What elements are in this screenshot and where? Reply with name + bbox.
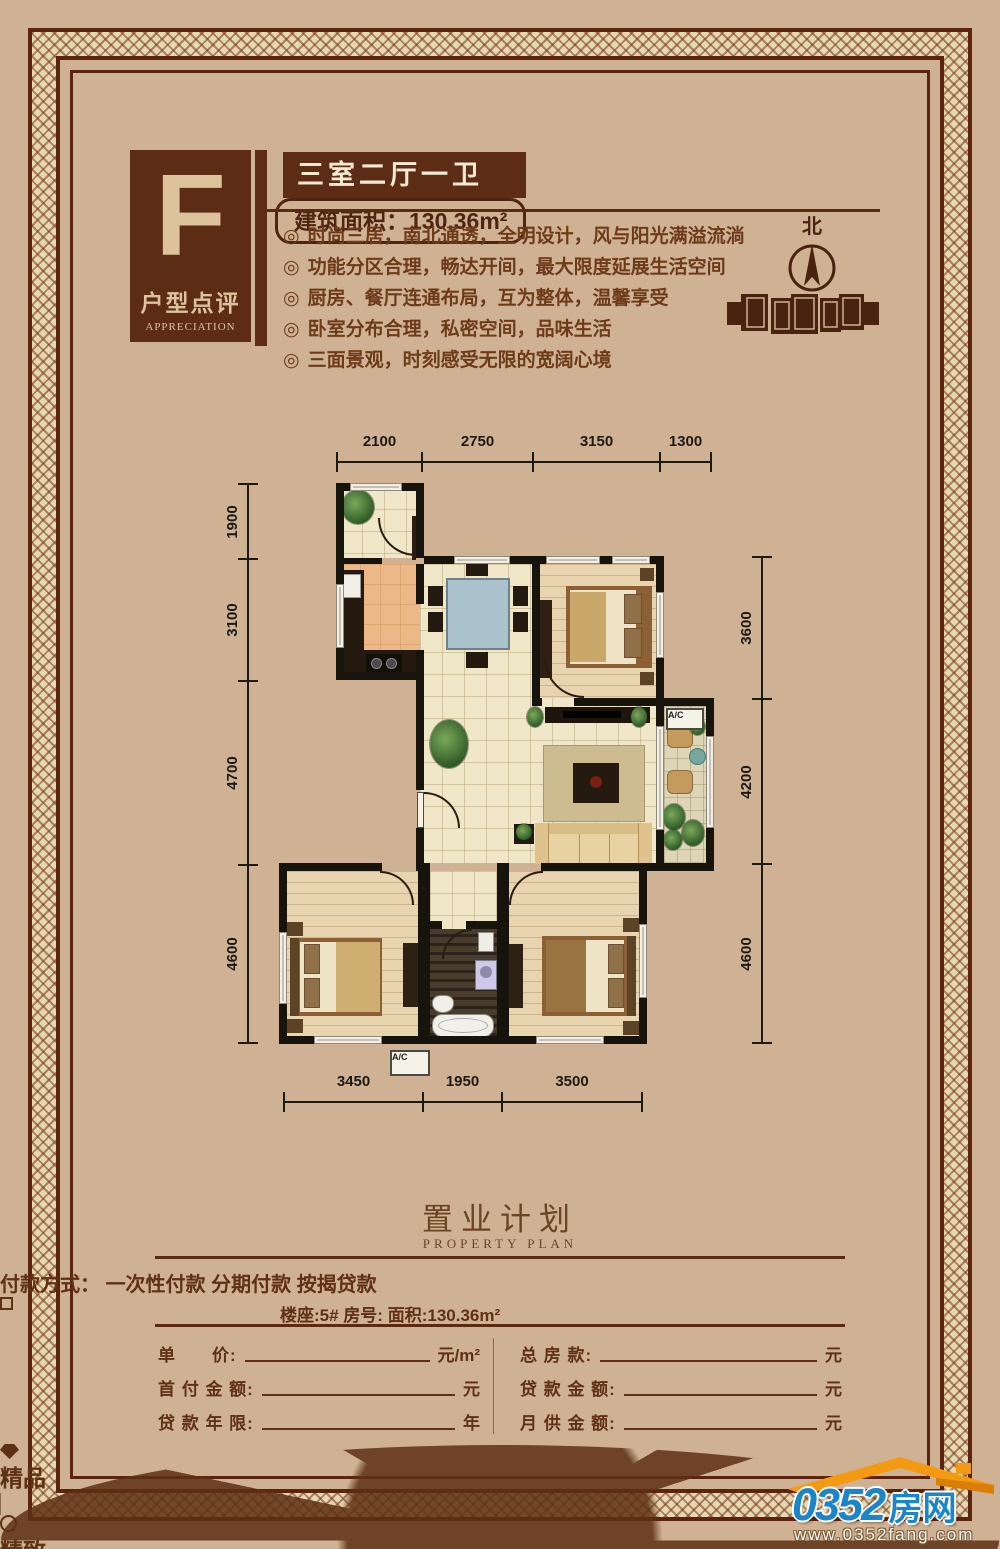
medallion-icon xyxy=(0,1515,17,1532)
form-unit: 元 xyxy=(463,1375,480,1404)
form-input-line[interactable] xyxy=(600,1342,817,1362)
plant xyxy=(342,490,374,524)
form-unit: 年 xyxy=(463,1409,480,1438)
dimension-value: 1900 xyxy=(224,505,241,538)
dimension-value: 3500 xyxy=(503,1073,641,1090)
blanket xyxy=(570,592,606,662)
washer-door-icon xyxy=(480,966,492,978)
payment-method-label: 付款方式： xyxy=(0,1274,100,1296)
form-input-line[interactable] xyxy=(624,1410,817,1430)
plant xyxy=(631,707,647,727)
dimension-value: 1300 xyxy=(661,433,710,450)
window xyxy=(314,1036,382,1044)
bathtub-basin xyxy=(438,1018,488,1033)
payment-option: 按揭贷款 xyxy=(297,1274,377,1296)
form-unit: 元 xyxy=(825,1409,842,1438)
dimension-segment: 1300 xyxy=(659,452,712,472)
sofa-back xyxy=(549,823,638,834)
pillow xyxy=(608,978,624,1008)
logo-number: 0352 xyxy=(792,1479,884,1530)
dimension-value: 1950 xyxy=(424,1073,501,1090)
feature-text: 厨房、餐厅连通布局，互为整体，温馨享受 xyxy=(308,288,669,309)
window xyxy=(656,726,664,830)
dimension-line-right: 3600 4200 4600 xyxy=(752,556,772,1044)
sofa-cushion-line xyxy=(609,834,610,863)
window xyxy=(279,932,287,1004)
plant xyxy=(430,720,468,768)
wall-segment xyxy=(656,863,714,871)
form-label: 贷 款 金 额: xyxy=(520,1375,616,1404)
section-rule xyxy=(155,1324,845,1327)
wall-segment xyxy=(416,680,424,790)
form-input-line[interactable] xyxy=(624,1376,817,1396)
site-logo: 0352 房网 www.0352fang.com xyxy=(786,1453,1000,1547)
form-divider xyxy=(493,1338,494,1434)
payment-option-label: 按揭贷款 xyxy=(297,1274,377,1296)
window xyxy=(656,592,664,658)
window xyxy=(706,736,714,828)
dimension-segment: 2100 xyxy=(336,452,421,472)
form-column-left: 单 价: 元/m² 首 付 金 额: 元 贷 款 年 限: 年 xyxy=(158,1336,480,1438)
pillow xyxy=(304,978,320,1008)
building-footprint xyxy=(727,287,879,337)
gem-icon xyxy=(0,1444,19,1459)
feature-text: 功能分区合理，畅达开间，最大限度延展生活空间 xyxy=(308,257,726,278)
form-input-line[interactable] xyxy=(262,1376,455,1396)
wall-segment xyxy=(466,921,497,929)
feature-text: 卧室分布合理，私密空间，品味生活 xyxy=(308,319,612,340)
feature-item: ◎三面景观，时刻感受无限的宽阔心境 xyxy=(283,345,873,376)
window xyxy=(612,556,650,564)
burner-icon xyxy=(371,658,382,669)
feature-text: 时尚三居，南北通透，全明设计，风与阳光满溢流淌 xyxy=(308,226,745,247)
dimension-segment: 4600 xyxy=(238,864,258,1044)
unit-letter: F xyxy=(130,156,251,274)
form-row: 总 房 款: 元 xyxy=(520,1336,842,1370)
badge-label: 精品 xyxy=(0,1465,46,1491)
pillow xyxy=(624,628,642,658)
blanket xyxy=(336,942,380,1012)
badge-divider xyxy=(0,1493,1,1515)
area-value-label: 面积:130.36m² xyxy=(388,1306,500,1325)
window xyxy=(336,584,344,648)
room-number-label: 房号: xyxy=(343,1306,383,1325)
header-divider-bar xyxy=(255,150,267,346)
logo-url: www.0352fang.com xyxy=(794,1525,974,1545)
wardrobe xyxy=(509,944,523,1008)
sofa-arm xyxy=(638,823,652,864)
dining-chair xyxy=(513,612,528,632)
dimension-line-bottom: 3450 1950 3500 xyxy=(283,1092,643,1112)
wardrobe xyxy=(403,943,418,1007)
nightstand xyxy=(623,1021,639,1035)
unit-letter-subtitle: APPRECIATION xyxy=(130,321,251,333)
dimension-segment: 3500 xyxy=(501,1092,643,1112)
payment-option-label: 分期付款 xyxy=(211,1274,291,1296)
unit-letter-box: F 户型点评 APPRECIATION xyxy=(130,150,251,342)
balcony-table xyxy=(689,748,706,765)
payment-option-label: 一次性付款 xyxy=(106,1274,206,1296)
form-row: 首 付 金 额: 元 xyxy=(158,1370,480,1404)
wall-segment xyxy=(574,698,664,706)
dimension-value: 4700 xyxy=(224,756,241,789)
ac-unit: A/C xyxy=(666,708,704,730)
tv xyxy=(563,711,621,718)
logo-text: 0352 房网 xyxy=(792,1479,957,1531)
bullet-icon: ◎ xyxy=(283,288,300,309)
window xyxy=(350,483,402,491)
nightstand xyxy=(287,1019,303,1033)
table-decor xyxy=(590,776,602,788)
section-rule xyxy=(155,1256,845,1259)
dimension-value: 4200 xyxy=(738,765,755,798)
dining-chair xyxy=(428,612,443,632)
dimension-value: 2100 xyxy=(338,433,421,450)
dimension-segment: 3450 xyxy=(283,1092,422,1112)
flyer-page: F 户型点评 APPRECIATION 三室二厅一卫 建筑面积：130.36m²… xyxy=(0,0,1000,1549)
form-label: 首 付 金 额: xyxy=(158,1375,254,1404)
form-label: 单 价: xyxy=(158,1341,237,1370)
nightstand xyxy=(640,672,654,685)
plant xyxy=(682,820,704,846)
form-input-line[interactable] xyxy=(245,1342,430,1362)
wall-segment xyxy=(336,558,382,564)
form-row: 贷 款 金 额: 元 xyxy=(520,1370,842,1404)
wall-segment xyxy=(430,921,442,929)
plant xyxy=(527,707,543,727)
bullet-icon: ◎ xyxy=(283,319,300,340)
sofa-arm xyxy=(535,823,549,864)
wall-segment xyxy=(418,863,430,1044)
wall-segment xyxy=(336,672,424,680)
balcony-chair xyxy=(667,770,693,794)
wall-segment xyxy=(416,564,424,604)
bathroom-sink xyxy=(478,932,494,952)
form-unit: 元/m² xyxy=(438,1341,481,1370)
payment-option: 一次性付款 xyxy=(106,1274,206,1296)
nightstand xyxy=(623,918,639,932)
toilet xyxy=(432,995,454,1013)
dimension-segment: 1900 xyxy=(238,483,258,558)
wall-segment xyxy=(279,863,382,871)
dimension-segment: 4700 xyxy=(238,680,258,864)
wall-segment xyxy=(336,483,344,680)
unit-letter-title: 户型点评 xyxy=(130,284,251,318)
form-column-right: 总 房 款: 元 贷 款 金 额: 元 月 供 金 额: 元 xyxy=(520,1336,842,1438)
dimension-value: 4600 xyxy=(224,937,241,970)
form-label: 月 供 金 额: xyxy=(520,1409,616,1438)
window xyxy=(546,556,600,564)
dimension-value: 3450 xyxy=(285,1073,422,1090)
unit-title-bar: 三室二厅一卫 建筑面积：130.36m² xyxy=(283,152,526,198)
form-row: 贷 款 年 限: 年 xyxy=(158,1404,480,1438)
dining-chair xyxy=(513,586,528,606)
plant xyxy=(516,824,532,840)
feature-text: 三面景观，时刻感受无限的宽阔心境 xyxy=(308,350,612,371)
wall-segment xyxy=(497,863,509,1044)
headboard xyxy=(290,938,299,1016)
pillow xyxy=(624,594,642,624)
dimension-line-top: 2100 2750 3150 1300 xyxy=(336,452,712,472)
checkbox[interactable] xyxy=(0,1297,13,1310)
dimension-value: 3150 xyxy=(534,433,659,450)
dining-table xyxy=(446,578,510,650)
payment-method-row: 付款方式： 一次性付款 分期付款 按揭贷款 xyxy=(0,1268,1000,1297)
north-label: 北 xyxy=(762,210,862,239)
logo-suffix: 房网 xyxy=(889,1490,957,1528)
bullet-icon: ◎ xyxy=(283,350,300,371)
pillow xyxy=(608,944,624,974)
content-layer: F 户型点评 APPRECIATION 三室二厅一卫 建筑面积：130.36m²… xyxy=(0,0,1000,1549)
dimension-value: 4600 xyxy=(738,937,755,970)
pillow xyxy=(304,944,320,974)
dimension-value: 3100 xyxy=(224,603,241,636)
form-row: 月 供 金 额: 元 xyxy=(520,1404,842,1438)
wall-segment xyxy=(416,828,424,863)
plant xyxy=(663,804,685,830)
window xyxy=(639,924,647,998)
form-input-line[interactable] xyxy=(262,1410,455,1430)
bullet-icon: ◎ xyxy=(283,257,300,278)
entry-door-leaf xyxy=(417,792,424,828)
bullet-icon: ◎ xyxy=(283,226,300,247)
form-unit: 元 xyxy=(825,1375,842,1404)
property-plan-subtitle: PROPERTY PLAN xyxy=(0,1236,1000,1252)
dining-chair xyxy=(466,652,488,668)
dimension-line-left: 1900 3100 4700 4600 xyxy=(238,483,258,1044)
dimension-value: 3600 xyxy=(738,611,755,644)
plant xyxy=(664,830,682,850)
property-plan-title: 置业计划 xyxy=(0,1194,1000,1239)
building-label: 楼座:5# xyxy=(280,1306,339,1325)
floor-plan: A/C A/C xyxy=(278,474,714,1078)
dimension-segment: 3150 xyxy=(532,452,659,472)
unit-info-row: 楼座:5# 房号: 面积:130.36m² xyxy=(280,1301,758,1326)
form-unit: 元 xyxy=(825,1341,842,1370)
burner-icon xyxy=(386,658,397,669)
door-leaf xyxy=(412,516,416,560)
unit-type-label: 三室二厅一卫 xyxy=(283,152,526,198)
kitchen-sink xyxy=(343,574,361,598)
sofa-cushion-line xyxy=(579,834,580,863)
window xyxy=(454,556,510,564)
dimension-value: 2750 xyxy=(423,433,532,450)
dimension-segment: 3100 xyxy=(238,558,258,680)
dimension-segment: 4600 xyxy=(752,863,772,1044)
nightstand xyxy=(640,568,654,581)
form-row: 单 价: 元/m² xyxy=(158,1336,480,1370)
wall-segment xyxy=(416,483,424,558)
window xyxy=(536,1036,604,1044)
dimension-segment: 4200 xyxy=(752,698,772,863)
nightstand xyxy=(287,922,303,936)
form-label: 贷 款 年 限: xyxy=(158,1409,254,1438)
payment-option: 分期付款 xyxy=(211,1274,291,1296)
form-label: 总 房 款: xyxy=(520,1341,592,1370)
headboard xyxy=(627,936,636,1016)
dimension-segment: 1950 xyxy=(422,1092,501,1112)
wall-segment xyxy=(532,556,540,706)
wall-segment xyxy=(532,698,542,706)
blanket xyxy=(546,940,586,1012)
dimension-segment: 3600 xyxy=(752,556,772,698)
dimension-segment: 2750 xyxy=(421,452,532,472)
dining-chair xyxy=(428,586,443,606)
